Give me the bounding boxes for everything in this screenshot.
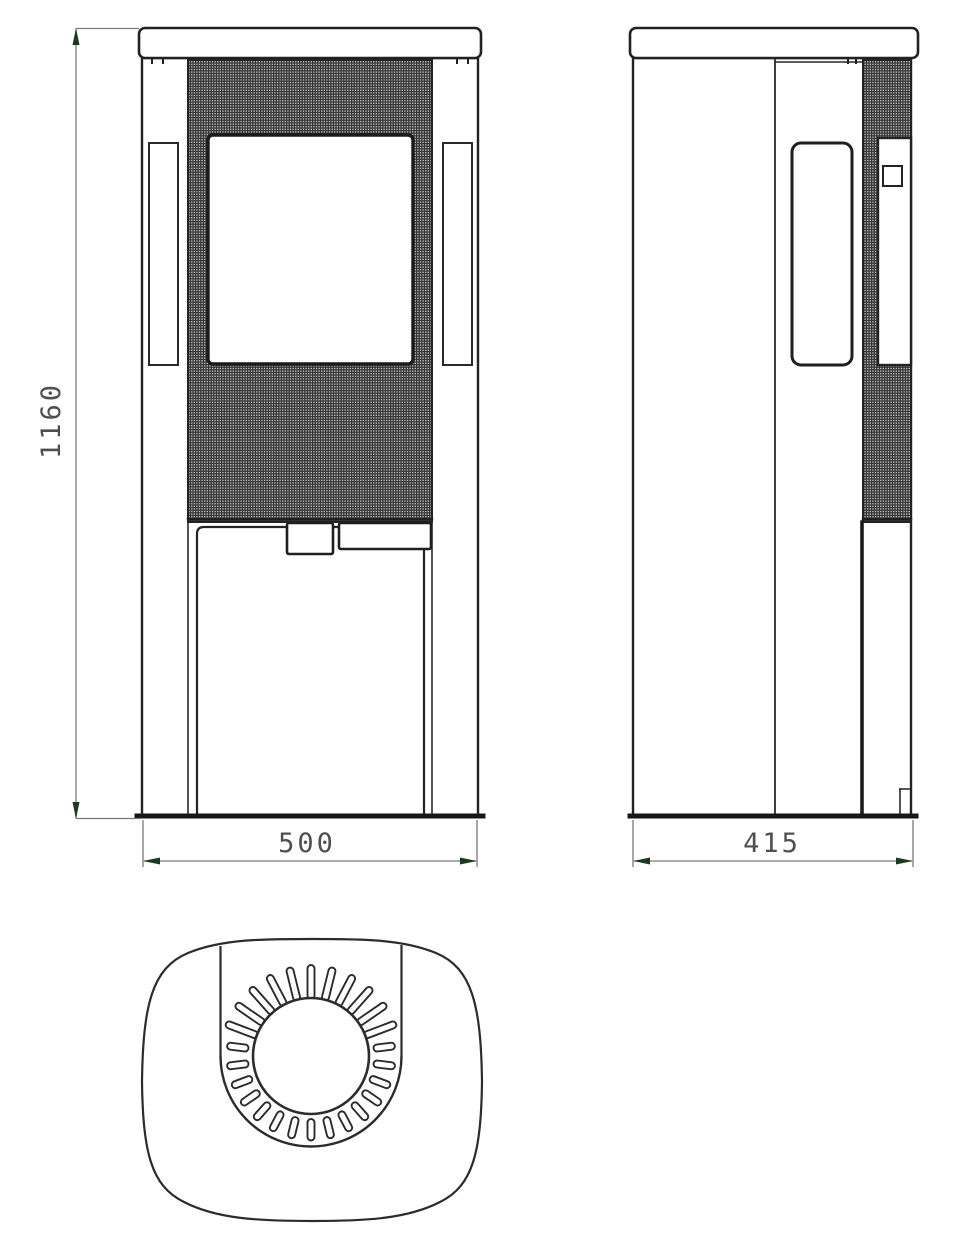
top-view — [142, 939, 482, 1221]
flue-opening — [253, 998, 369, 1114]
technical-drawing-page: 1160 500 415 — [0, 0, 962, 1250]
drawing-svg: 1160 500 415 — [0, 0, 962, 1250]
arrow-right-icon — [896, 858, 913, 865]
arrow-left-icon — [633, 858, 650, 865]
vent-slot — [373, 1042, 395, 1052]
side-view — [630, 28, 918, 816]
dimension-height: 1160 — [36, 28, 142, 819]
vent-slot — [308, 965, 315, 999]
front-view — [137, 28, 483, 816]
arrow-down-icon — [73, 802, 80, 819]
vent-slot — [227, 1060, 249, 1070]
dimension-width-label: 500 — [278, 828, 336, 859]
front-glass-window — [208, 135, 413, 364]
dimension-height-label: 1160 — [36, 382, 67, 459]
door-latch-box — [339, 523, 431, 549]
arrow-up-icon — [73, 28, 80, 45]
front-door-panel — [197, 527, 424, 815]
side-trim-right — [443, 143, 472, 365]
door-handle-box — [287, 523, 333, 554]
vent-slot — [308, 1119, 315, 1141]
arrow-right-icon — [460, 858, 477, 865]
arrow-left-icon — [143, 858, 160, 865]
side-door-handle — [792, 143, 852, 365]
side-notch-detail-box — [883, 166, 902, 186]
side-trim-left — [149, 143, 178, 365]
vent-slot — [227, 1042, 249, 1052]
side-top-plate — [630, 28, 918, 58]
dimension-depth-label: 415 — [743, 828, 801, 859]
vent-slot — [373, 1060, 395, 1070]
front-top-plate — [139, 28, 481, 58]
dimension-width: 500 — [143, 820, 477, 867]
dimension-depth: 415 — [633, 820, 913, 867]
